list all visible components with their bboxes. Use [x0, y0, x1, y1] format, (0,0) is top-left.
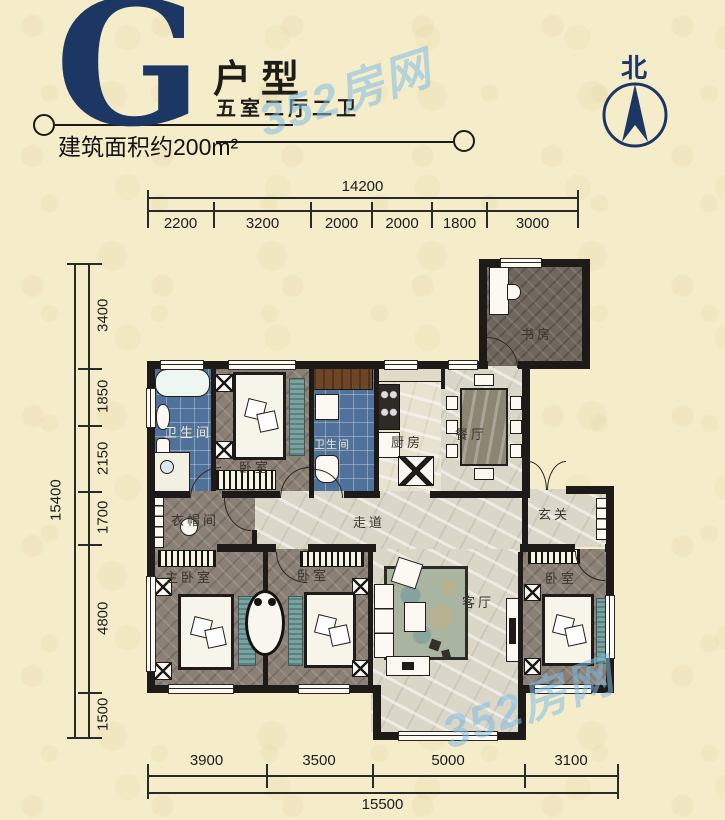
- decor-dot: [254, 598, 262, 606]
- wall: [479, 259, 487, 369]
- room-label-master-bedroom: 主卧室: [165, 567, 213, 586]
- corridor-floor: [255, 491, 525, 552]
- room-label-kitchen: 厨房: [391, 432, 423, 451]
- dim-tick: [78, 737, 102, 739]
- decor-line-2: [216, 141, 453, 143]
- wall: [368, 552, 373, 685]
- dim-top-seg: 2200: [147, 215, 214, 232]
- nightstand: [352, 660, 369, 677]
- room-label-cloakroom: 衣帽间: [171, 510, 219, 529]
- wall: [344, 491, 380, 498]
- dining-chair: [510, 444, 522, 458]
- dim-top-seg: 1800: [432, 215, 487, 232]
- wall: [252, 491, 257, 498]
- bath-counter: [154, 452, 190, 492]
- tv: [509, 618, 516, 644]
- decor-column: [245, 590, 285, 656]
- wall: [582, 259, 590, 369]
- room-label-bath2: 卫生间: [314, 436, 350, 452]
- desk-chair: [507, 284, 521, 300]
- wall: [308, 544, 376, 552]
- room-label-corridor: 走道: [353, 512, 385, 531]
- room-label-dining: 餐厅: [455, 424, 487, 443]
- wall: [441, 367, 445, 389]
- dim-tick: [266, 764, 268, 788]
- window: [146, 388, 156, 428]
- wall: [222, 491, 280, 498]
- dining-chair: [510, 420, 522, 434]
- wall: [430, 491, 530, 498]
- curtain-strip: [288, 596, 303, 666]
- dim-top-total: 14200: [147, 178, 578, 195]
- wardrobe: [158, 550, 216, 567]
- dim-line: [147, 792, 618, 794]
- dim-left-seg: 1700: [93, 491, 113, 544]
- room-label-bedroom-top: 卧室: [239, 457, 271, 476]
- pillow: [328, 624, 351, 647]
- wood-counter: [313, 368, 373, 390]
- dim-top-seg: 2000: [311, 215, 372, 232]
- dining-chair: [446, 396, 458, 410]
- dim-bottom-seg: 3100: [524, 752, 618, 769]
- window: [228, 360, 296, 370]
- window: [605, 595, 615, 659]
- dim-line: [147, 197, 578, 199]
- dim-top-seg: 3200: [214, 215, 311, 232]
- room-label-bedroom2: 卧室: [297, 565, 329, 584]
- dim-top-seg: 3000: [487, 215, 578, 232]
- dim-line: [88, 263, 90, 738]
- room-label-entry: 玄关: [538, 504, 570, 523]
- dim-left-total: 15400: [46, 263, 66, 738]
- dim-bottom-seg: 3500: [266, 752, 372, 769]
- curtain-strip: [289, 378, 305, 456]
- dining-chair: [474, 468, 494, 480]
- north-compass-icon: [600, 80, 670, 155]
- wall: [522, 491, 528, 544]
- nightstand: [154, 662, 172, 680]
- decor-circle-right: [453, 130, 475, 152]
- dim-tick: [372, 764, 374, 788]
- dim-bottom-seg: 3900: [147, 752, 266, 769]
- kitchen-table: [398, 456, 434, 486]
- stove: [378, 384, 400, 430]
- nightstand: [352, 578, 369, 595]
- dim-bottom-total: 15500: [147, 796, 618, 813]
- decor-dot: [268, 598, 276, 606]
- dim-line: [147, 775, 618, 777]
- room-label-study: 书房: [521, 324, 553, 343]
- window: [298, 684, 350, 694]
- wall: [518, 552, 523, 685]
- kitchen-counter: [378, 368, 442, 382]
- wall: [374, 367, 379, 491]
- window: [160, 360, 204, 370]
- dim-tick: [524, 764, 526, 788]
- sofa: [374, 584, 394, 658]
- dim-top-seg: 2000: [372, 215, 432, 232]
- nightstand: [215, 374, 233, 392]
- floorplan-page: { "header": { "letter": "G", "type_label…: [0, 0, 725, 820]
- dining-chair: [510, 396, 522, 410]
- nightstand: [524, 584, 541, 601]
- nightstand: [215, 441, 233, 459]
- dim-left-seg: 1850: [93, 368, 113, 425]
- window: [448, 360, 478, 370]
- entry-door-left-leaf: [528, 461, 547, 490]
- dim-line: [74, 263, 76, 738]
- washing-machine: [315, 394, 339, 420]
- wall: [252, 530, 257, 552]
- window: [168, 684, 234, 694]
- pillow: [564, 624, 587, 647]
- wall: [217, 544, 276, 552]
- dim-left-seg: 1500: [93, 692, 113, 737]
- dining-chair: [474, 374, 494, 386]
- desk: [489, 267, 509, 315]
- dim-bottom-seg: 5000: [372, 752, 524, 769]
- area-label: 建筑面积约200m²: [58, 128, 238, 162]
- coffee-table: [404, 602, 426, 632]
- decor-circle-left: [33, 114, 55, 136]
- basin: [160, 460, 174, 474]
- room-label-bath1: 卫生间: [164, 422, 212, 441]
- room-label-bedroom3: 卧室: [545, 568, 577, 587]
- window: [384, 360, 418, 370]
- dim-left-seg: 4800: [93, 544, 113, 692]
- dim-line: [147, 210, 578, 212]
- window: [146, 576, 156, 672]
- entry-door-right-leaf: [547, 461, 566, 490]
- bathtub: [155, 369, 210, 397]
- pillow: [204, 626, 227, 649]
- dim-left-seg: 3400: [93, 263, 113, 368]
- window: [500, 258, 542, 268]
- tv: [402, 662, 414, 670]
- pillow: [256, 410, 279, 433]
- dining-chair: [446, 444, 458, 458]
- room-label-living: 客厅: [462, 592, 494, 611]
- wall: [520, 544, 575, 552]
- dim-left-seg: 2150: [93, 425, 113, 491]
